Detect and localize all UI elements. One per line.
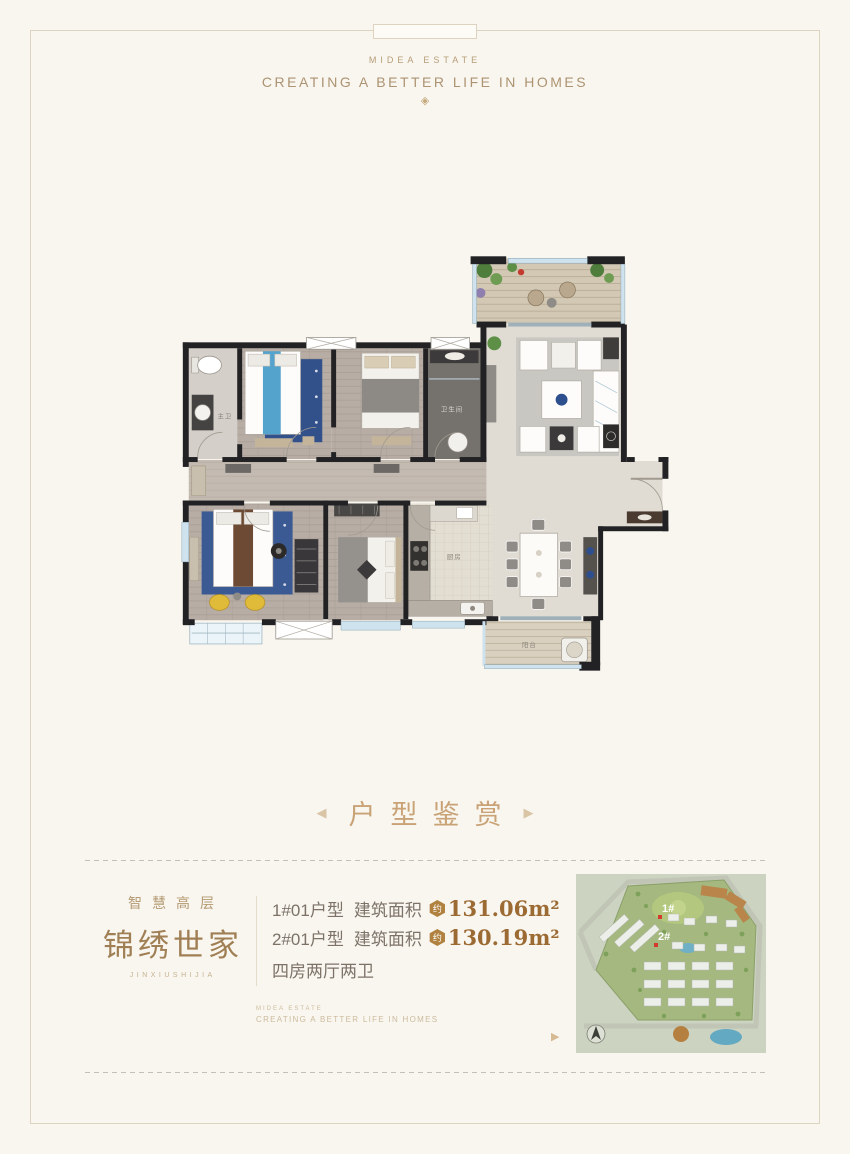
dashed-divider-bottom: [85, 1072, 765, 1073]
footer-branding: MIDEA ESTATE CREATING A BETTER LIFE IN H…: [256, 1006, 438, 1024]
pool: [710, 1029, 742, 1045]
living-plant: [487, 336, 501, 350]
balcony-basin: [562, 638, 588, 662]
unit-row-1: 1#01户型 建筑面积 约 131.06m²: [272, 894, 552, 923]
building1-marker: 1#: [662, 903, 674, 915]
clubhouse: [673, 1026, 689, 1042]
brand-slogan: CREATING A BETTER LIFE IN HOMES: [0, 74, 850, 90]
sitemap-arrow-icon: ▶: [551, 1030, 559, 1043]
master-bath-label: 主卫: [217, 411, 232, 420]
section-title: 户型鉴赏: [349, 800, 517, 830]
title-arrow-right-icon: ▶: [524, 805, 534, 820]
approx-badge-icon: 约: [429, 929, 446, 946]
top-ornament-box: [373, 24, 477, 39]
yellow-chair: [245, 595, 265, 611]
bedroom1-furniture: [245, 351, 322, 447]
foyer-console: [627, 511, 663, 523]
footer-brand-slogan: CREATING A BETTER LIFE IN HOMES: [256, 1015, 438, 1024]
branding-latin: JINXIUSHIJIA: [92, 972, 250, 979]
marker2-dot: [654, 943, 658, 947]
unit-row-2: 2#01户型 建筑面积 约 130.19m²: [272, 923, 552, 952]
bath-label: 卫生间: [441, 405, 463, 414]
compass-icon: [587, 1025, 605, 1043]
diamond-ornament-icon: ◈: [0, 94, 850, 107]
kitchen-label: 厨房: [447, 552, 462, 561]
marker1-dot: [658, 915, 662, 919]
unit-name: 2#01户型: [272, 925, 344, 950]
layout-description: 四房两厅两卫: [272, 956, 552, 982]
vertical-divider: [256, 896, 257, 986]
unit-name: 1#01户型: [272, 896, 344, 921]
site-map: 1# 2#: [576, 874, 766, 1053]
bay-window: [190, 623, 262, 644]
area-value: 131.06m²: [448, 896, 560, 921]
footer-brand-name: MIDEA ESTATE: [256, 1006, 438, 1012]
building2-marker: 2#: [658, 931, 670, 943]
unit-info: 1#01户型 建筑面积 约 131.06m² 2#01户型 建筑面积 约 130…: [272, 894, 552, 982]
floor-plan: 主卫 卫生间 厨房 阳台: [168, 247, 702, 675]
area-label: 建筑面积: [354, 896, 422, 921]
yellow-chair: [210, 595, 230, 611]
branding-title: 锦绣世家: [92, 920, 250, 965]
branding-subtitle: 智慧高层: [92, 893, 250, 913]
area-label: 建筑面积: [354, 925, 422, 950]
wine-cabinet: [583, 537, 597, 594]
title-arrow-left-icon: ◀: [317, 805, 327, 820]
area-value: 130.19m²: [448, 925, 560, 950]
dashed-divider-top: [85, 860, 765, 861]
project-branding: 智慧高层 锦绣世家 JINXIUSHIJIA: [92, 893, 250, 979]
brand-name: MIDEA ESTATE: [0, 55, 850, 65]
brochure-page: MIDEA ESTATE CREATING A BETTER LIFE IN H…: [0, 0, 850, 1154]
balcony-label: 阳台: [522, 640, 537, 649]
approx-badge-icon: 约: [429, 900, 446, 917]
section-title-row: ◀户型鉴赏▶: [0, 793, 850, 832]
